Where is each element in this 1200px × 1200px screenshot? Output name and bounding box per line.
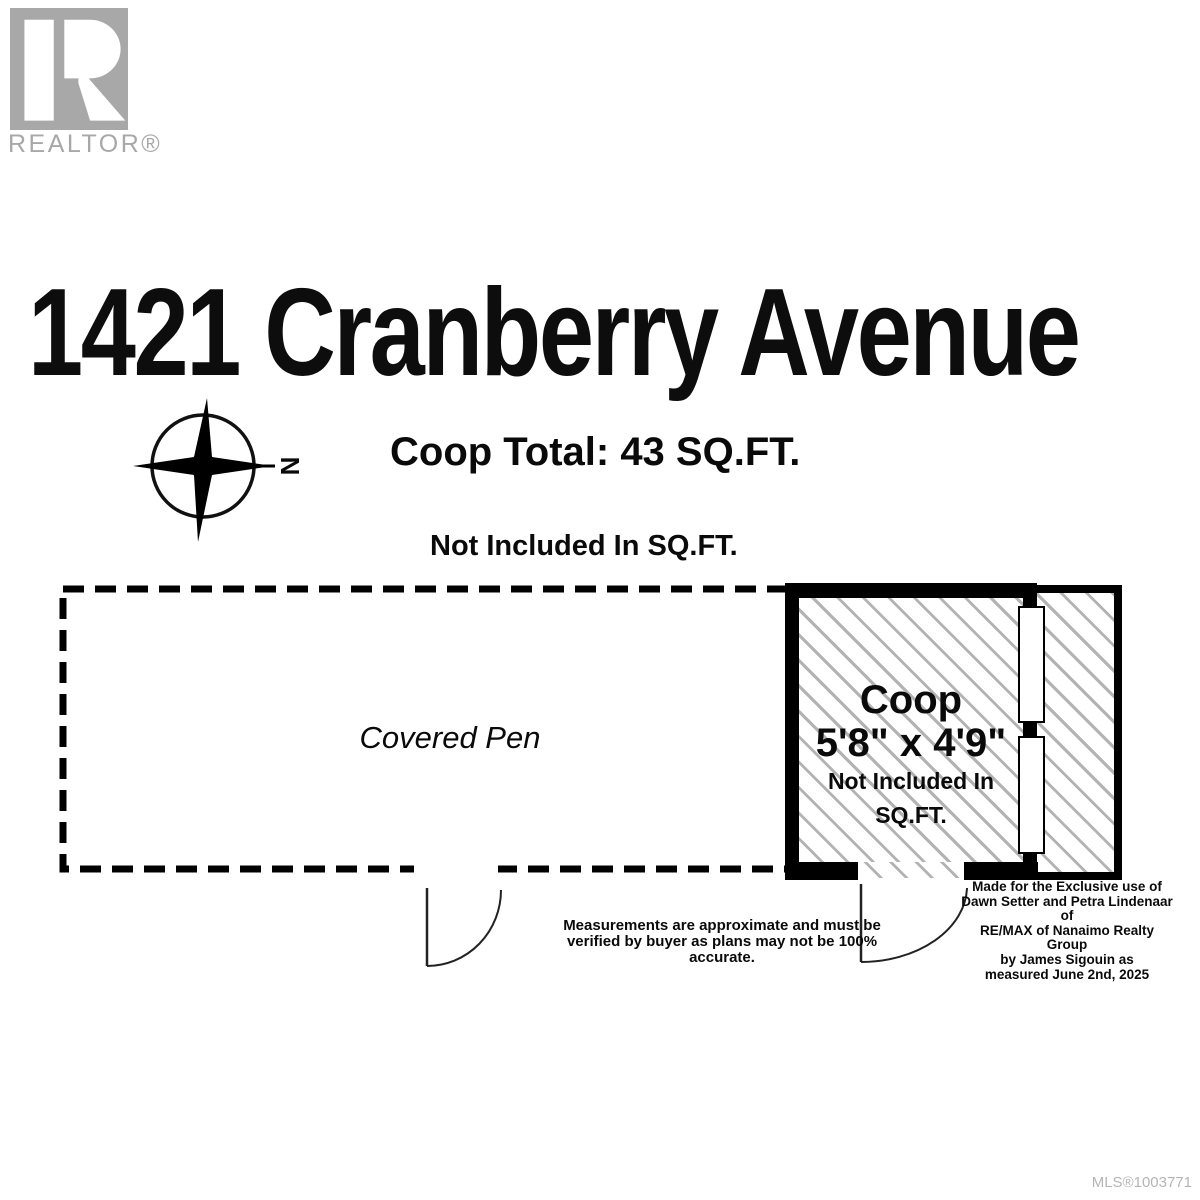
floor-plan-page: REALTOR® 1421 Cranberry Avenue N Coop To… [0, 0, 1200, 1200]
covered-pen-label: Covered Pen [330, 720, 570, 756]
coop-wall-left [785, 583, 799, 880]
mls-number: MLS®1003771 [1092, 1174, 1192, 1191]
made-for-line: measured June 2nd, 2025 [958, 968, 1176, 983]
coop-room-label: Coop 5'8" x 4'9" Not Included In SQ.FT. [801, 678, 1021, 832]
measurements-disclaimer-line1: Measurements are approximate and must be [562, 918, 882, 934]
interior-wall-stub-bottom [1023, 850, 1037, 880]
made-for-line: RE/MAX of Nanaimo Realty Group [958, 924, 1176, 953]
sliding-door-panel-lower [1019, 737, 1044, 853]
pen-door-swing-arc [427, 890, 501, 966]
made-for-line: Dawn Setter and Petra Lindenaar of [958, 895, 1176, 924]
coop-wall-bottom-left [785, 862, 858, 880]
measurements-disclaimer: Measurements are approximate and must be… [562, 918, 882, 966]
made-for-line: Made for the Exclusive use of [958, 880, 1176, 895]
measurements-disclaimer-line2: verified by buyer as plans may not be 10… [562, 934, 882, 966]
made-for-line: by James Sigouin as [958, 953, 1176, 968]
annex-border-right [1114, 585, 1122, 880]
sliding-door-panel-upper [1019, 607, 1044, 722]
made-for-attribution: Made for the Exclusive use of Dawn Sette… [958, 880, 1176, 982]
coop-not-included-note: Not Included In SQ.FT. [801, 764, 1021, 832]
pen-door-opening [414, 863, 498, 876]
annex-border-top [1037, 585, 1122, 593]
coop-name: Coop [801, 678, 1021, 722]
coop-wall-top [785, 583, 1037, 598]
plan-linework [0, 0, 1200, 1200]
coop-dimensions: 5'8" x 4'9" [801, 722, 1021, 764]
